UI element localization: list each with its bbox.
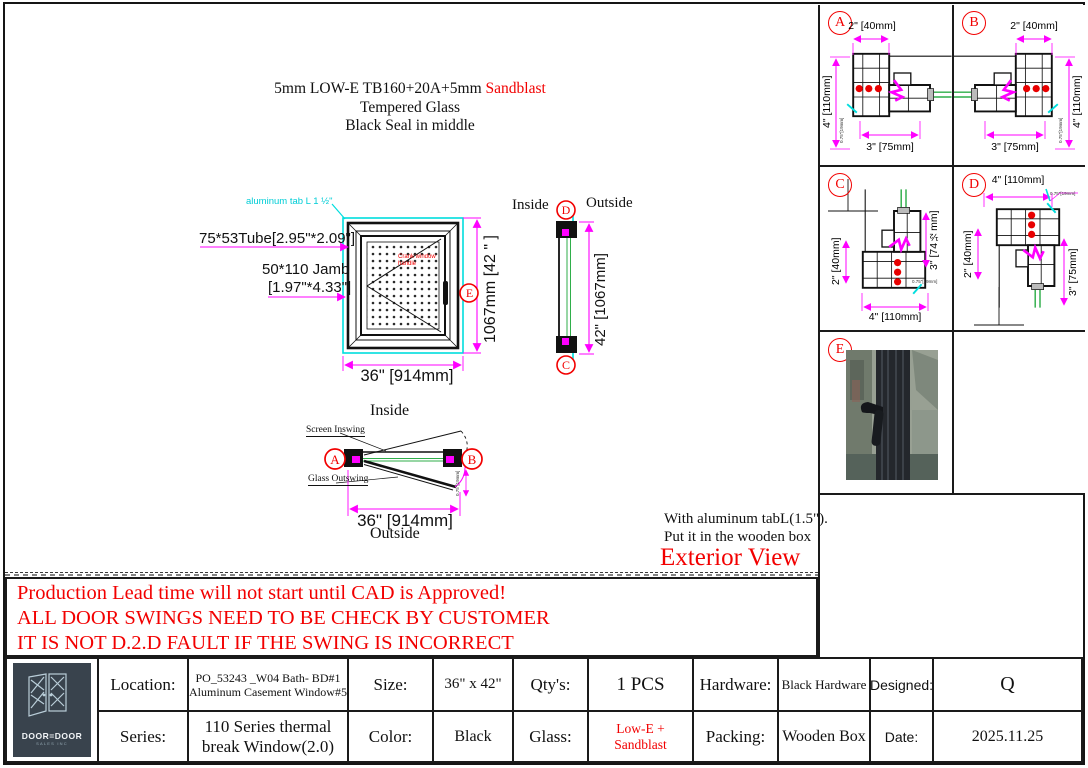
location-value: PO_53243 _W04 Bath- BD#1 Aluminum Caseme… — [187, 659, 347, 710]
qty-label: Qty's: — [512, 659, 587, 710]
side-inside-label: Inside — [512, 197, 549, 214]
date-value: 2025.11.25 — [932, 710, 1081, 761]
warning-line1: Production Lead time will not start unti… — [17, 581, 816, 606]
detail-a-dim-side: 4" [110mm] — [821, 59, 833, 145]
cad-drawing-page: 5mm LOW-E TB160+20A+5mm Sandblast Temper… — [0, 0, 1088, 768]
detail-cell-d: D 4" [110mm] 2" [40mm] 3" [75mm] 0.75"[1… — [954, 167, 1085, 332]
logo-title: DOOR=DOOR — [22, 731, 82, 741]
hardware-label: Hardware: — [692, 659, 777, 710]
title-block-table: DOOR=DOOR SALES INC Location: PO_53243 _… — [5, 657, 1083, 763]
color-label: Color: — [347, 710, 432, 761]
detail-marker-c: C — [828, 173, 852, 197]
warning-line3: IT IS NOT D.2.D FAULT IF THE SWING IS IN… — [17, 631, 816, 656]
location-label: Location: — [97, 659, 187, 710]
tube-label: 75*53Tube[2.95"*2.09"] — [199, 230, 355, 247]
detail-marker-b: B — [962, 11, 986, 35]
detail-b-dim-top: 2" [40mm] — [1004, 20, 1064, 32]
detail-d-dim-top: 4" [110mm] — [978, 174, 1058, 186]
dashed-divider — [5, 572, 818, 573]
date-label: Date: — [869, 710, 932, 761]
side-view-drawing — [556, 201, 594, 374]
warning-line2: ALL DOOR SWINGS NEED TO BE CHECK BY CUST… — [17, 606, 816, 631]
size-value: 36" x 42" — [432, 659, 512, 710]
handle-note-line1: Crank window — [398, 254, 458, 261]
detail-marker-e-callout: E — [460, 284, 479, 303]
side-height-dimension: 42" [1067mm] — [592, 240, 609, 360]
logo-doors-icon — [20, 671, 84, 729]
designed-value: Q — [932, 659, 1081, 710]
hardware-value: Black Hardware — [777, 659, 869, 710]
glass-label: Glass: — [512, 710, 587, 761]
series-label: Series: — [97, 710, 187, 761]
detail-c-dim-left: 2" [40mm] — [830, 233, 842, 289]
packing-value: Wooden Box — [777, 710, 869, 761]
detail-d-dim-right: 3" [75mm] — [1067, 237, 1079, 307]
jamb-label-line2: [1.97"*4.33"] — [268, 279, 351, 296]
detail-marker-d-callout: D — [558, 203, 574, 218]
detail-marker-b-callout: B — [464, 452, 480, 468]
handle-note-line2: handle — [398, 261, 458, 268]
logo-cell: DOOR=DOOR SALES INC — [7, 659, 97, 761]
designed-label: Designed: — [869, 659, 932, 710]
glass-spec-line2: Tempered Glass — [230, 99, 590, 118]
detail-marker-c-callout: C — [558, 358, 574, 373]
detail-c-dim-right: 3" [74½mm] — [928, 207, 940, 273]
color-value: Black — [432, 710, 512, 761]
detail-b-dim-bottom: 3" [75mm] — [983, 141, 1047, 153]
series-value: 110 Series thermal break Window(2.0) — [187, 710, 347, 761]
plan-outside-label: Outside — [370, 525, 420, 543]
detail-cell-b: B 2" [40mm] 4" [110mm] 3" [75mm] 0.75"[1… — [954, 5, 1085, 167]
detail-marker-a-callout: A — [327, 452, 343, 468]
glass-spec-note: 5mm LOW-E TB160+20A+5mm Sandblast Temper… — [230, 80, 590, 136]
screen-inswing-label: Screen Inswing — [306, 425, 365, 437]
exterior-view-title: Exterior View — [660, 544, 800, 572]
detail-a-dim-bottom: 3" [75mm] — [858, 141, 922, 153]
company-logo: DOOR=DOOR SALES INC — [13, 663, 91, 757]
glass-spec-line1: 5mm LOW-E TB160+20A+5mm Sandblast — [230, 80, 590, 99]
packing-label: Packing: — [692, 710, 777, 761]
detail-cell-c: C 2" [40mm] 3" [74½mm] 4" [110mm] 0.75"[… — [820, 167, 954, 332]
detail-c-dim-bottom: 4" [110mm] — [860, 311, 930, 323]
detail-cell-e: E — [820, 332, 954, 495]
glass-outswing-label: Glass Outswing — [308, 474, 368, 486]
side-outside-label: Outside — [586, 195, 633, 212]
warning-box: Production Lead time will not start unti… — [5, 577, 818, 657]
jamb-label-line1: 50*110 Jamb — [262, 261, 349, 278]
detail-panel: A 2" [40mm] 4" [110mm] 3" [75mm] 0.75"[1… — [818, 5, 1083, 657]
glass-value: Low-E + Sandblast — [587, 710, 692, 761]
detail-b-dim-side: 4" [110mm] — [1071, 59, 1083, 145]
plan-tiny-dimension: 0.75"[19mm] — [455, 471, 460, 496]
detail-b-tiny-dim: 0.75"[19mm] — [1058, 111, 1063, 149]
exterior-note-line1: With aluminum tabL(1.5"). — [664, 511, 828, 528]
size-label: Size: — [347, 659, 432, 710]
glass-spec-line1-red: Sandblast — [486, 80, 546, 97]
glass-spec-line3: Black Seal in middle — [230, 117, 590, 136]
hardware-photo — [846, 350, 938, 480]
detail-cell-empty — [954, 332, 1085, 495]
front-height-dimension: 1067mm [42 " ] — [482, 222, 500, 356]
front-width-dimension: 36" [914mm] — [352, 367, 462, 386]
qty-value: 1 PCS — [587, 659, 692, 710]
handle-note: Crank window handle — [398, 254, 458, 268]
aluminum-tab-label: aluminum tab L 1 ½" — [246, 196, 332, 207]
glass-spec-line1-black: 5mm LOW-E TB160+20A+5mm — [274, 80, 485, 97]
detail-a-tiny-dim: 0.75"[19mm] — [839, 111, 844, 149]
detail-d-dim-left: 2" [40mm] — [962, 225, 974, 283]
logo-subtitle: SALES INC — [36, 741, 68, 746]
detail-d-tiny-dim: 0.75"[19mm] — [1050, 191, 1075, 196]
detail-cell-a: A 2" [40mm] 4" [110mm] 3" [75mm] 0.75"[1… — [820, 5, 954, 167]
detail-c-tiny-dim: 0.75"[19mm] — [912, 279, 937, 284]
detail-a-dim-top: 2" [40mm] — [842, 20, 902, 32]
plan-inside-label: Inside — [370, 402, 409, 420]
